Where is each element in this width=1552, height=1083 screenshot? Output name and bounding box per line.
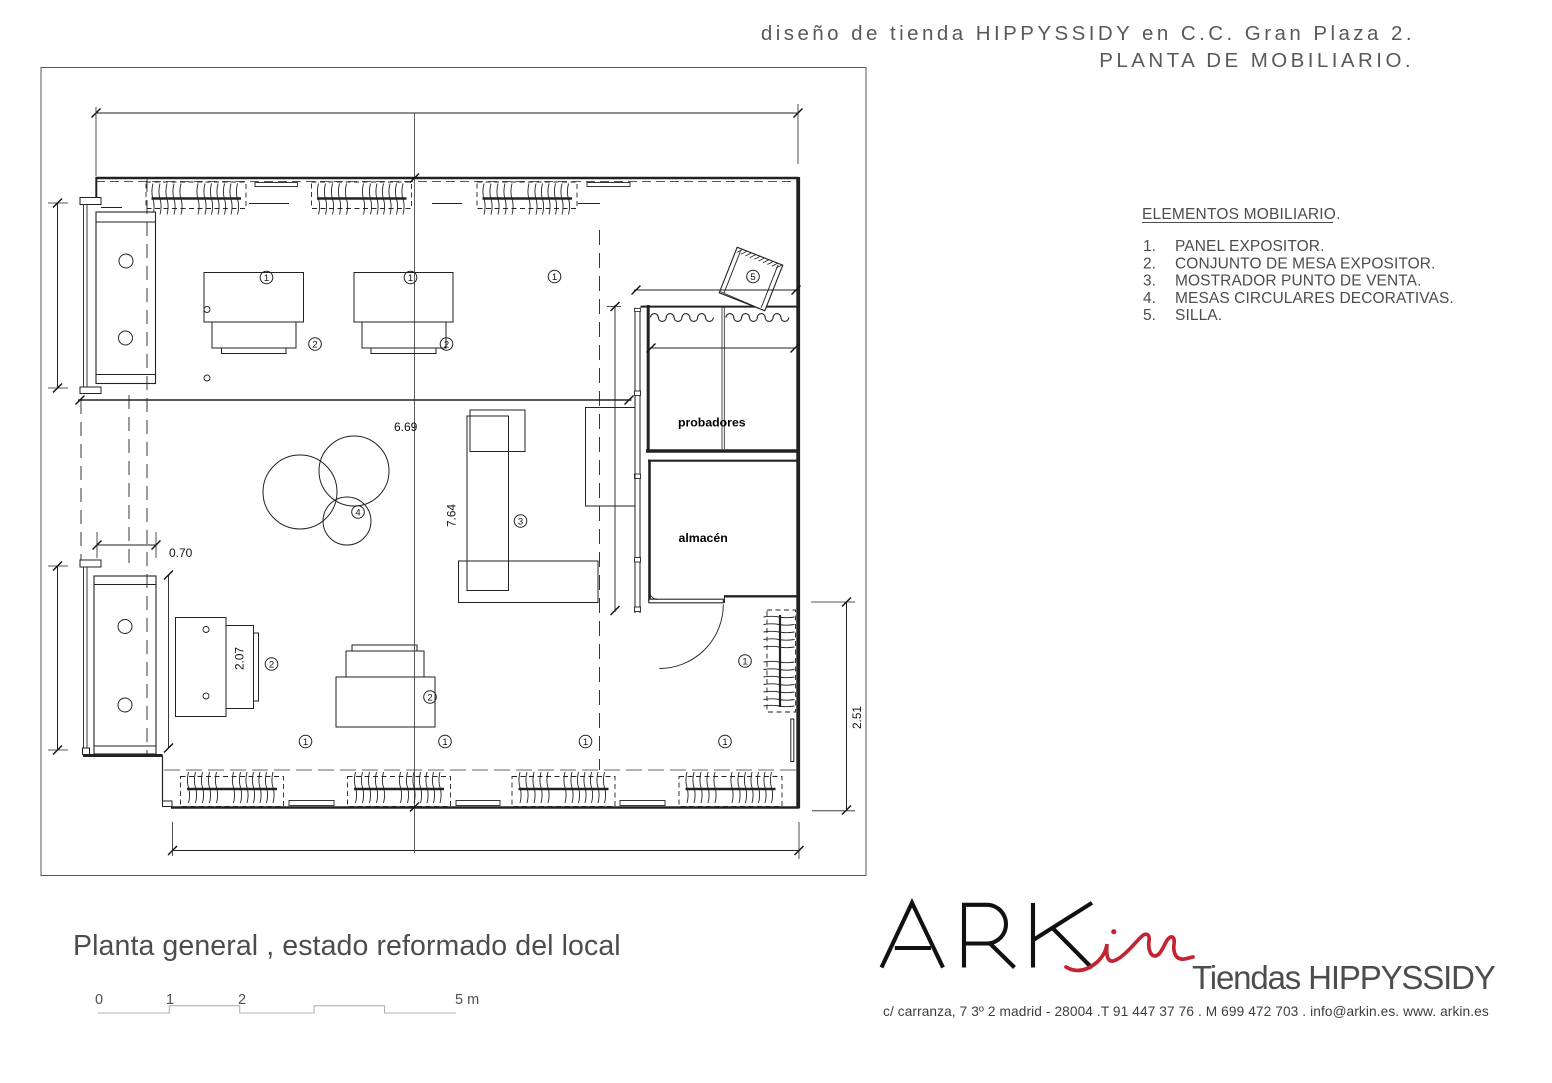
- svg-text:almacén: almacén: [679, 531, 728, 545]
- svg-text:Tiendas HIPPYSSIDY: Tiendas HIPPYSSIDY: [1192, 959, 1496, 996]
- svg-text:0.70: 0.70: [169, 546, 193, 560]
- svg-text:2: 2: [444, 339, 449, 350]
- svg-text:2.: 2.: [1143, 255, 1156, 272]
- svg-text:1: 1: [442, 737, 447, 748]
- svg-text:1: 1: [742, 656, 747, 667]
- svg-text:probadores: probadores: [678, 416, 746, 430]
- svg-text:2: 2: [269, 659, 274, 670]
- svg-text:4.: 4.: [1143, 290, 1156, 307]
- svg-text:1: 1: [552, 272, 557, 283]
- svg-text:PANEL EXPOSITOR.: PANEL EXPOSITOR.: [1175, 238, 1324, 255]
- svg-text:2: 2: [427, 692, 432, 703]
- svg-text:1: 1: [303, 737, 308, 748]
- svg-text:5.: 5.: [1143, 307, 1156, 324]
- svg-text:diseño de tienda HIPPYSSIDY en: diseño de tienda HIPPYSSIDY en C.C. Gran…: [761, 22, 1415, 45]
- svg-text:5 m: 5 m: [455, 992, 479, 1008]
- svg-text:1.: 1.: [1143, 238, 1156, 255]
- svg-text:2: 2: [238, 992, 246, 1008]
- svg-text:1: 1: [264, 273, 269, 284]
- svg-text:6.69: 6.69: [394, 420, 418, 434]
- svg-text:Planta general , estado reform: Planta general , estado reformado del lo…: [73, 930, 621, 962]
- svg-text:2: 2: [312, 339, 317, 350]
- svg-text:4: 4: [355, 507, 360, 518]
- svg-text:1: 1: [583, 737, 588, 748]
- svg-text:MESAS CIRCULARES DECORATIVAS.: MESAS CIRCULARES DECORATIVAS.: [1175, 290, 1454, 307]
- svg-text:MOSTRADOR PUNTO DE VENTA.: MOSTRADOR PUNTO DE VENTA.: [1175, 273, 1422, 290]
- svg-text:1: 1: [408, 273, 413, 284]
- svg-text:3.: 3.: [1143, 273, 1156, 290]
- svg-text:3: 3: [518, 516, 523, 527]
- svg-text:7.64: 7.64: [445, 504, 459, 527]
- svg-text:5: 5: [750, 272, 755, 283]
- svg-text:SILLA.: SILLA.: [1175, 307, 1222, 324]
- svg-text:c/ carranza, 7 3º 2 madrid: c/ carranza, 7 3º 2 madrid - 28004 .T 91…: [883, 1004, 1489, 1019]
- svg-text:0: 0: [95, 992, 103, 1008]
- svg-text:2.51: 2.51: [850, 706, 864, 729]
- svg-text:2.07: 2.07: [233, 647, 247, 670]
- svg-text:1: 1: [722, 737, 727, 748]
- svg-text:1: 1: [166, 992, 174, 1008]
- svg-text:ELEMENTOS MOBILIARIO.: ELEMENTOS MOBILIARIO.: [1142, 206, 1341, 223]
- svg-text:PLANTA DE MOBILIARIO.: PLANTA DE MOBILIARIO.: [1099, 49, 1414, 72]
- svg-text:CONJUNTO DE MESA EXPOSITOR.: CONJUNTO DE MESA EXPOSITOR.: [1175, 255, 1436, 272]
